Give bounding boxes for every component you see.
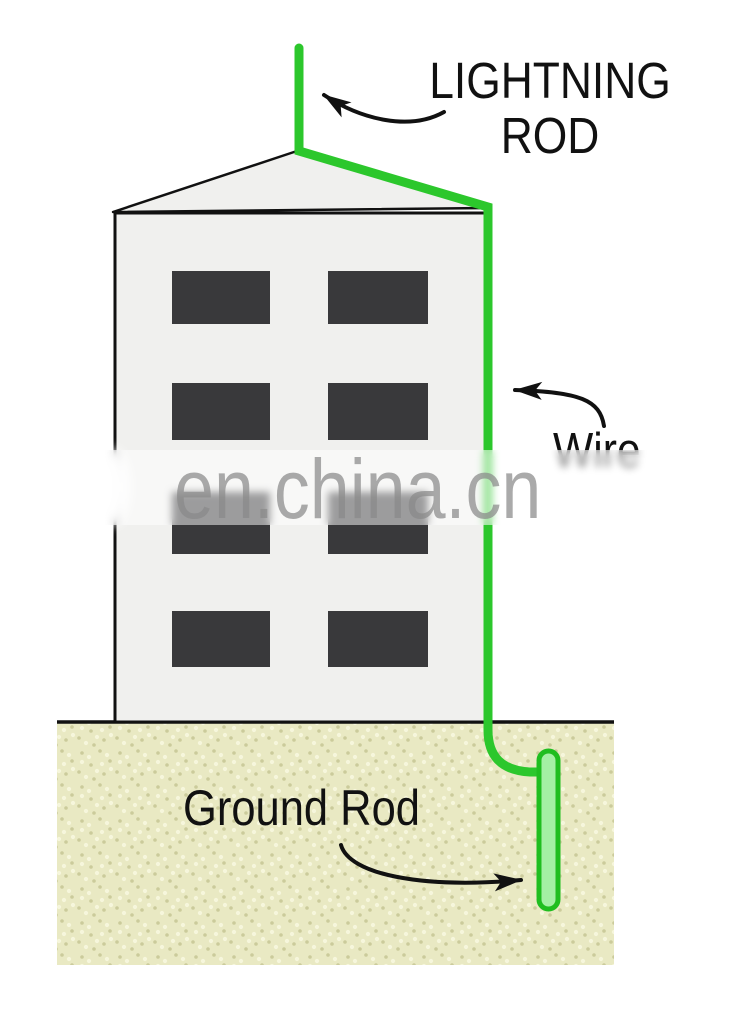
window [172,611,270,667]
arrow-to-wire [515,390,604,426]
ground-rod-label: Ground Rod [183,780,420,836]
window [172,383,270,440]
window [172,271,270,324]
watermark-blur-spot [96,449,130,525]
building [113,151,488,722]
lightning-rod-label: LIGHTNING ROD [420,53,681,163]
lightning-rod-label-line2: ROD [420,108,681,163]
diagram-canvas: Wire en.china.cn LIGHTNING ROD Ground Ro… [0,0,739,1023]
lightning-rod-label-line1: LIGHTNING [420,53,681,108]
watermark: en.china.cn [174,444,541,534]
window [328,383,428,440]
window [328,271,428,324]
ground-rod [539,751,558,909]
window [328,611,428,667]
ground-soil [57,722,614,965]
